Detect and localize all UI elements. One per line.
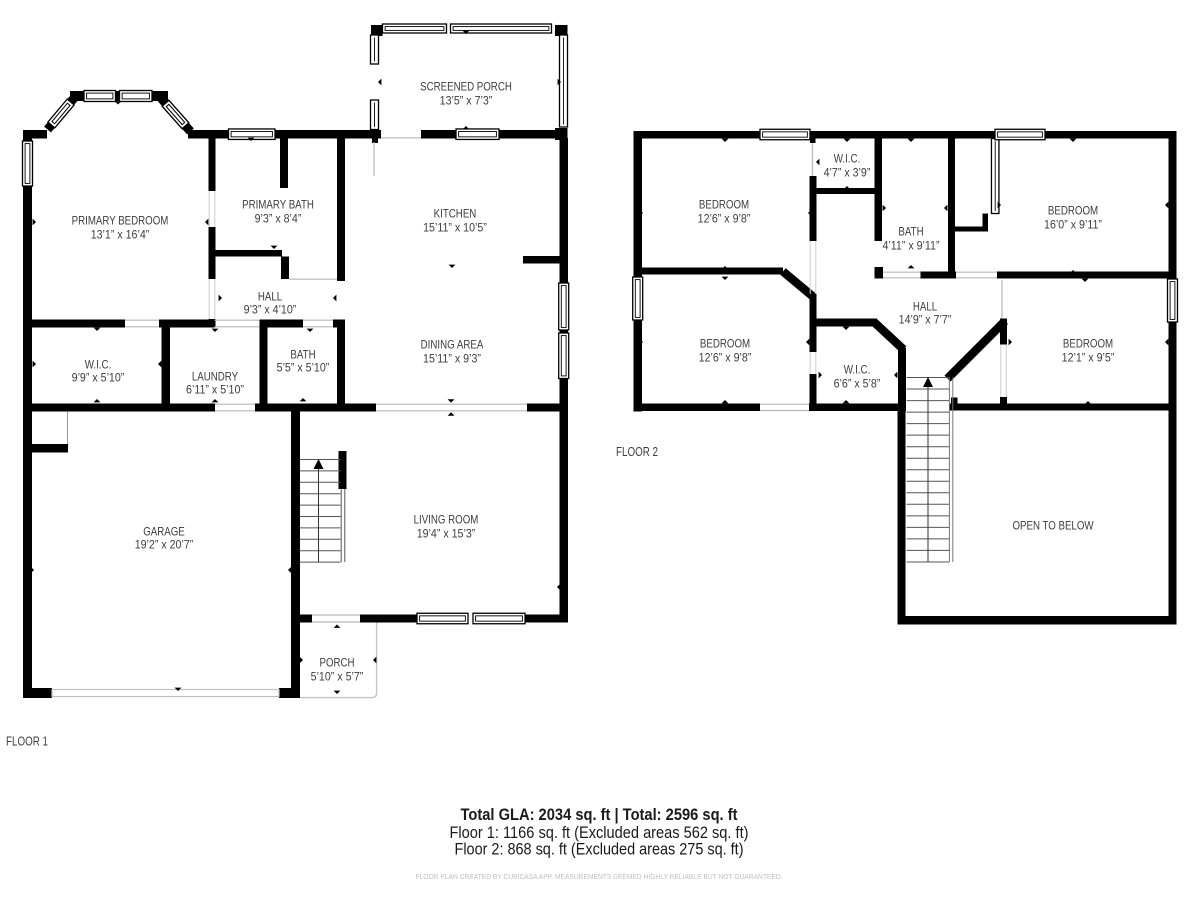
svg-text:OPEN TO BELOW: OPEN TO BELOW (1012, 518, 1093, 532)
svg-text:PORCH: PORCH (320, 655, 355, 669)
svg-text:15’11” x 9’3”: 15’11” x 9’3” (423, 351, 481, 365)
svg-text:19’2” x 20’7”: 19’2” x 20’7” (135, 537, 194, 551)
svg-text:12’1” x 9’5”: 12’1” x 9’5” (1062, 350, 1115, 364)
svg-text:6’11” x 5’10”: 6’11” x 5’10” (186, 382, 244, 396)
svg-text:BATH: BATH (290, 347, 315, 361)
svg-text:HALL: HALL (913, 299, 937, 313)
svg-text:W.I.C.: W.I.C. (844, 362, 871, 376)
svg-text:4’7” x 3’9”: 4’7” x 3’9” (824, 165, 871, 179)
svg-text:FLOOR 1: FLOOR 1 (6, 734, 48, 748)
svg-text:9’3” x 4’10”: 9’3” x 4’10” (244, 302, 297, 316)
svg-text:9’3” x 8’4”: 9’3” x 8’4” (255, 211, 302, 225)
svg-text:12’6” x 9’8”: 12’6” x 9’8” (699, 350, 752, 364)
svg-text:6’6” x 5’8”: 6’6” x 5’8” (834, 376, 881, 390)
svg-text:SCREENED PORCH: SCREENED PORCH (420, 79, 512, 93)
svg-text:16’0” x 9’11”: 16’0” x 9’11” (1044, 217, 1102, 231)
svg-text:DINING AREA: DINING AREA (421, 337, 484, 351)
svg-text:5’10” x 5’7”: 5’10” x 5’7” (311, 669, 364, 683)
svg-text:12’6” x 9’8”: 12’6” x 9’8” (698, 211, 751, 225)
svg-text:BEDROOM: BEDROOM (1048, 203, 1098, 217)
svg-text:Floor 1: 1166 sq. ft (Excluded: Floor 1: 1166 sq. ft (Excluded areas 562… (450, 824, 749, 842)
svg-text:FLOOR 2: FLOOR 2 (616, 445, 658, 459)
svg-text:19’4” x 15’3”: 19’4” x 15’3” (417, 526, 476, 540)
svg-text:LIVING ROOM: LIVING ROOM (414, 512, 479, 526)
svg-text:15’11” x 10’5”: 15’11” x 10’5” (423, 220, 487, 234)
svg-text:14’9” x 7’7”: 14’9” x 7’7” (899, 312, 952, 326)
svg-text:BEDROOM: BEDROOM (699, 197, 749, 211)
svg-text:HALL: HALL (258, 289, 282, 303)
svg-text:13’1” x 16’4”: 13’1” x 16’4” (91, 227, 150, 241)
svg-text:Total GLA: 2034 sq. ft | Total: Total GLA: 2034 sq. ft | Total: 2596 sq.… (461, 806, 738, 824)
svg-text:13’5” x 7’3”: 13’5” x 7’3” (440, 93, 493, 107)
svg-text:5’5” x 5’10”: 5’5” x 5’10” (277, 360, 330, 374)
svg-text:FLOOR PLAN CREATED BY CUBICASA: FLOOR PLAN CREATED BY CUBICASA APP. MEAS… (416, 872, 783, 881)
svg-text:BATH: BATH (898, 224, 923, 238)
svg-text:PRIMARY BATH: PRIMARY BATH (242, 197, 314, 211)
svg-text:Floor 2: 868 sq. ft (Excluded: Floor 2: 868 sq. ft (Excluded areas 275 … (455, 841, 744, 859)
svg-text:KITCHEN: KITCHEN (434, 206, 477, 220)
svg-text:9’9” x 5’10”: 9’9” x 5’10” (72, 370, 125, 384)
svg-text:LAUNDRY: LAUNDRY (192, 369, 238, 383)
svg-text:BEDROOM: BEDROOM (700, 336, 750, 350)
svg-text:BEDROOM: BEDROOM (1063, 336, 1113, 350)
svg-text:4’11” x 9’11”: 4’11” x 9’11” (882, 238, 939, 252)
svg-text:GARAGE: GARAGE (143, 524, 185, 538)
svg-text:W.I.C.: W.I.C. (834, 151, 861, 165)
svg-text:PRIMARY BEDROOM: PRIMARY BEDROOM (72, 213, 169, 227)
svg-text:W.I.C.: W.I.C. (85, 357, 112, 371)
